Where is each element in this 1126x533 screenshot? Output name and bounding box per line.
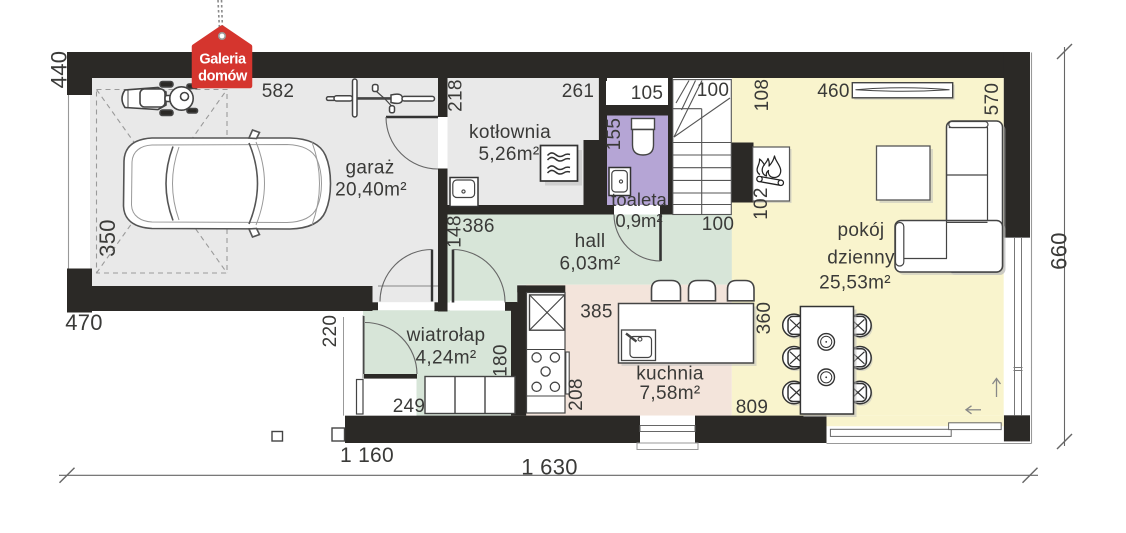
- svg-text:100: 100: [702, 214, 735, 235]
- svg-text:5,26m²: 5,26m²: [479, 144, 540, 165]
- svg-text:domów: domów: [198, 69, 248, 85]
- svg-text:pokój: pokój: [838, 220, 885, 241]
- svg-text:100: 100: [697, 80, 730, 101]
- svg-text:208: 208: [566, 378, 587, 411]
- svg-text:460: 460: [817, 81, 850, 102]
- svg-text:wiatrołap: wiatrołap: [406, 325, 486, 346]
- svg-text:218: 218: [446, 79, 467, 112]
- svg-text:155: 155: [604, 118, 625, 151]
- svg-text:4,24m²: 4,24m²: [416, 348, 477, 369]
- svg-text:20,40m²: 20,40m²: [335, 180, 407, 201]
- svg-text:385: 385: [580, 302, 613, 323]
- svg-text:0,9m²: 0,9m²: [615, 210, 662, 231]
- svg-text:Galeria: Galeria: [199, 52, 247, 68]
- svg-text:25,53m²: 25,53m²: [819, 273, 891, 294]
- svg-text:102: 102: [751, 187, 772, 220]
- svg-text:108: 108: [752, 79, 773, 112]
- svg-text:249: 249: [393, 396, 426, 417]
- svg-text:360: 360: [754, 302, 775, 335]
- svg-text:180: 180: [491, 344, 512, 377]
- svg-text:kotłownia: kotłownia: [469, 122, 551, 143]
- svg-text:470: 470: [65, 310, 103, 335]
- svg-text:kuchnia: kuchnia: [636, 364, 704, 385]
- svg-text:440: 440: [47, 51, 72, 89]
- svg-text:570: 570: [982, 83, 1003, 116]
- svg-text:261: 261: [562, 81, 595, 102]
- svg-text:386: 386: [462, 216, 495, 237]
- svg-text:6,03m²: 6,03m²: [560, 254, 621, 275]
- svg-text:hall: hall: [575, 231, 606, 252]
- svg-text:350: 350: [95, 219, 120, 257]
- svg-text:dzienny: dzienny: [827, 248, 895, 269]
- svg-text:1 160: 1 160: [340, 444, 394, 467]
- svg-text:105: 105: [631, 83, 664, 104]
- svg-text:220: 220: [320, 315, 341, 348]
- svg-text:7,58m²: 7,58m²: [640, 383, 701, 404]
- svg-text:660: 660: [1047, 232, 1072, 270]
- svg-text:toaleta: toaleta: [611, 189, 667, 210]
- svg-text:garaż: garaż: [345, 158, 394, 179]
- svg-text:1 630: 1 630: [521, 455, 578, 480]
- svg-text:582: 582: [262, 81, 295, 102]
- svg-text:148: 148: [445, 215, 466, 248]
- svg-text:809: 809: [736, 397, 769, 418]
